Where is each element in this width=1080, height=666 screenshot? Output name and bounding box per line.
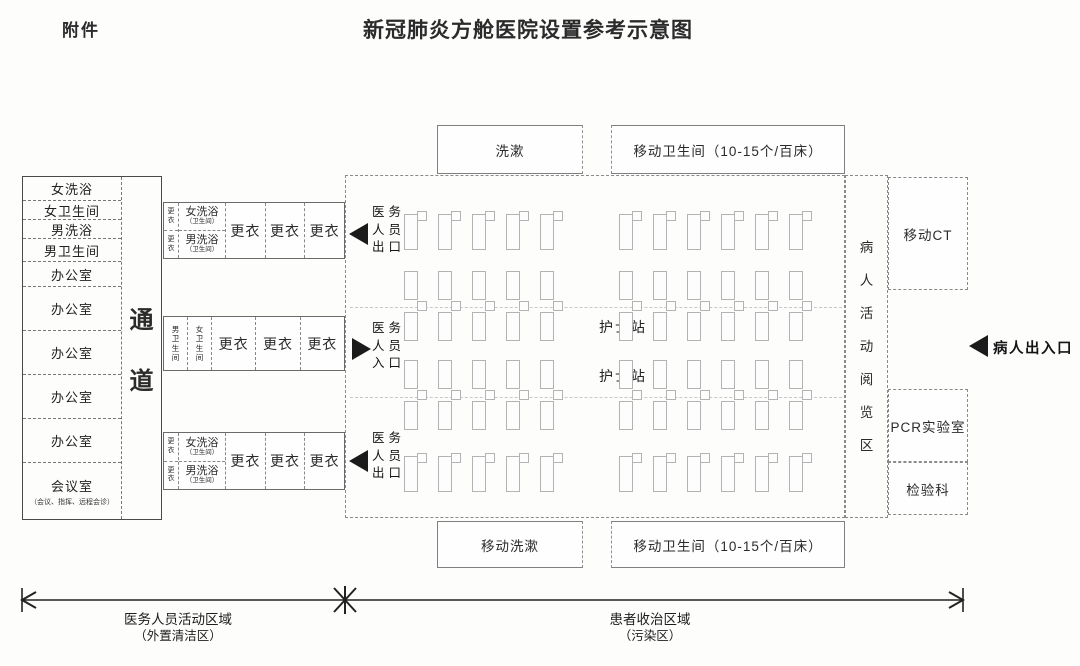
corridor-char-1: 通 xyxy=(130,300,154,335)
changing-small-cell: 更衣 xyxy=(167,467,174,484)
mobile-wash-bottom: 移动洗漱 xyxy=(437,521,583,568)
changing-small-cell: 更衣 xyxy=(167,438,174,455)
room-office-2: 办公室 xyxy=(23,287,121,331)
meeting-room-note: （会议、指挥、远程会诊） xyxy=(30,497,114,507)
patient-ward: 护士站 护士站 xyxy=(345,175,845,518)
changing-room: 更衣 xyxy=(304,203,344,258)
pcr-lab-room: PCR实验室 xyxy=(888,389,968,462)
corridor: 通 道 xyxy=(122,177,161,519)
attachment-label: 附件 xyxy=(62,16,100,41)
changing-room: 更衣 xyxy=(300,317,344,370)
clean-zone-label: 医务人员活动区域 （外置清洁区） xyxy=(58,611,298,645)
female-shower-cell: 女洗浴 （卫生间） xyxy=(179,203,225,230)
male-shower-label: 男洗浴 xyxy=(186,235,219,246)
room-meeting: 会议室 （会议、指挥、远程会诊） xyxy=(23,463,121,519)
changing-band-middle: 男卫生间 女卫生间 更衣 更衣 更衣 xyxy=(163,316,345,371)
changing-room: 更衣 xyxy=(265,203,305,258)
zone-name: 患者收治区域 xyxy=(530,611,770,628)
zone-name: 医务人员活动区域 xyxy=(58,611,298,628)
patient-activity-label: 病人活动阅览区 xyxy=(859,231,873,462)
changing-small-cell: 更衣 xyxy=(167,208,174,225)
changing-room: 更衣 xyxy=(226,203,265,258)
zone-note: （污染区） xyxy=(530,628,770,645)
room-male-shower: 男洗浴 xyxy=(23,220,121,239)
changing-room: 更衣 xyxy=(255,317,299,370)
female-wc-strip: 女卫生间 xyxy=(196,325,204,363)
male-wc-strip: 男卫生间 xyxy=(172,325,180,363)
changing-band-bottom: 更衣 更衣 女洗浴 （卫生间） 男洗浴 （卫生间） 更衣 更衣 更衣 xyxy=(163,432,345,490)
female-shower-label: 女洗浴 xyxy=(186,438,219,449)
staff-room-block: 女洗浴 女卫生间 男洗浴 男卫生间 办公室 办公室 办公室 办公室 办公室 会议… xyxy=(22,176,162,520)
male-shower-note: （卫生间） xyxy=(186,247,219,254)
mobile-toilet-top: 移动卫生间（10-15个/百床） xyxy=(611,125,845,174)
shower-column: 女洗浴 （卫生间） 男洗浴 （卫生间） xyxy=(179,433,226,489)
room-female-toilet: 女卫生间 xyxy=(23,201,121,220)
corridor-char-2: 道 xyxy=(130,361,154,396)
room-office-5: 办公室 xyxy=(23,419,121,463)
page-title: 新冠肺炎方舱医院设置参考示意图 xyxy=(350,14,706,44)
changing-band-top: 更衣 更衣 女洗浴 （卫生间） 男洗浴 （卫生间） 更衣 更衣 更衣 xyxy=(163,202,345,259)
female-shower-label: 女洗浴 xyxy=(186,207,219,218)
changing-room: 更衣 xyxy=(304,433,344,489)
zone-note: （外置清洁区） xyxy=(58,628,298,645)
mobile-toilet-bottom: 移动卫生间（10-15个/百床） xyxy=(611,521,845,568)
changing-room: 更衣 xyxy=(226,433,265,489)
male-shower-cell: 男洗浴 （卫生间） xyxy=(179,461,225,490)
room-office-4: 办公室 xyxy=(23,375,121,419)
female-shower-note: （卫生间） xyxy=(186,450,219,457)
room-office-3: 办公室 xyxy=(23,331,121,375)
meeting-room-label: 会议室 xyxy=(51,476,93,495)
patient-entrance-label: 病人出入口 xyxy=(993,337,1073,358)
staff-rooms-column: 女洗浴 女卫生间 男洗浴 男卫生间 办公室 办公室 办公室 办公室 办公室 会议… xyxy=(23,177,122,519)
room-male-toilet: 男卫生间 xyxy=(23,239,121,262)
patient-activity-area: 病人活动阅览区 xyxy=(845,175,888,518)
wash-area-top: 洗漱 xyxy=(437,125,583,174)
test-department-room: 检验科 xyxy=(888,462,968,515)
female-shower-cell: 女洗浴 （卫生间） xyxy=(179,433,225,461)
changing-small-column: 更衣 更衣 xyxy=(164,433,179,489)
changing-room: 更衣 xyxy=(265,433,305,489)
patient-entrance-arrow-icon xyxy=(969,335,988,357)
contaminated-zone-label: 患者收治区域 （污染区） xyxy=(530,611,770,645)
male-shower-label: 男洗浴 xyxy=(186,466,219,477)
room-office-1: 办公室 xyxy=(23,262,121,287)
room-female-shower: 女洗浴 xyxy=(23,177,121,201)
changing-small-cell: 更衣 xyxy=(167,236,174,253)
male-shower-note: （卫生间） xyxy=(186,478,219,485)
shower-column: 女洗浴 （卫生间） 男洗浴 （卫生间） xyxy=(179,203,226,258)
changing-small-column: 更衣 更衣 xyxy=(164,203,179,258)
fangcang-hospital-diagram: 附件 新冠肺炎方舱医院设置参考示意图 女洗浴 女卫生间 男洗浴 男卫生间 办公室… xyxy=(0,0,1080,666)
male-shower-cell: 男洗浴 （卫生间） xyxy=(179,230,225,258)
changing-room: 更衣 xyxy=(212,317,255,370)
female-shower-note: （卫生间） xyxy=(186,219,219,226)
mobile-ct-room: 移动CT xyxy=(888,177,968,290)
